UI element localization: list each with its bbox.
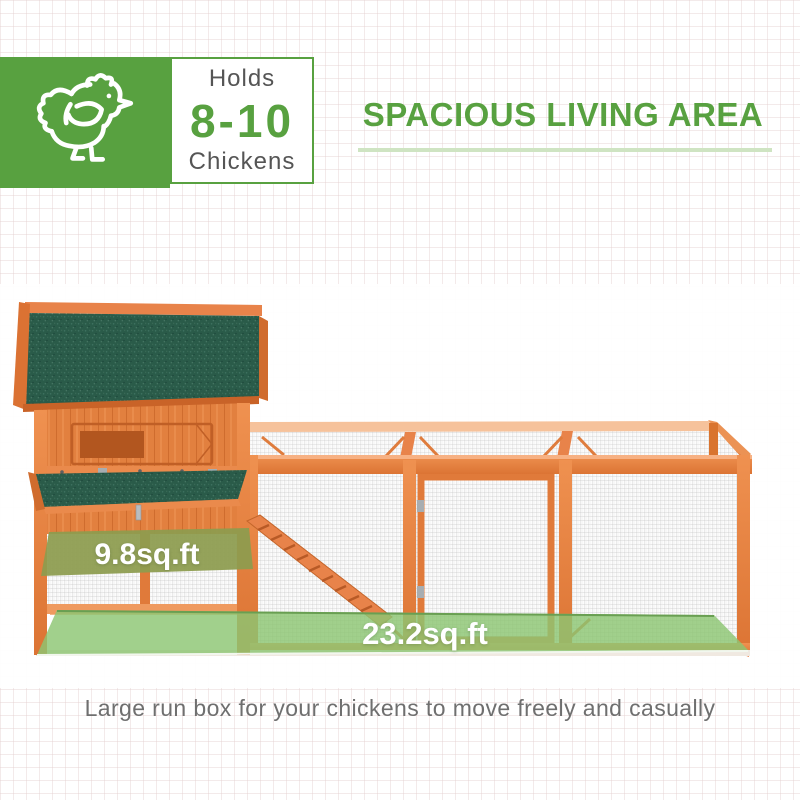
chicken-legs xyxy=(73,146,103,158)
product-infographic: 9.8sq.ft 23.2sq.ft Holds 8-10 Chickens S… xyxy=(0,0,800,800)
capacity-icon-box xyxy=(0,57,170,188)
house-area-label: 9.8sq.ft xyxy=(77,538,217,572)
screw xyxy=(60,470,64,474)
holds-label: Holds xyxy=(209,65,275,93)
house-left-wall xyxy=(34,410,47,655)
roof-panel xyxy=(23,313,259,406)
chicken-icon xyxy=(25,71,145,175)
chicken-head xyxy=(104,83,131,127)
chicken-back xyxy=(71,84,90,93)
run-area-label: 23.2sq.ft xyxy=(340,616,510,652)
caption-text: Large run box for your chickens to move … xyxy=(0,695,800,722)
chickens-label: Chickens xyxy=(189,148,296,176)
run-front-right-post xyxy=(737,455,750,655)
lid-prop-hinge xyxy=(136,505,141,520)
heading-underline xyxy=(358,148,772,152)
house-window-opening xyxy=(80,431,144,458)
chicken-eye xyxy=(107,93,112,98)
capacity-stat-box: Holds 8-10 Chickens xyxy=(170,57,314,184)
roof-right-fascia xyxy=(259,316,268,401)
beam-highlight xyxy=(245,455,752,459)
door-hinge xyxy=(417,500,424,512)
chicken-belly xyxy=(52,126,104,147)
capacity-range: 8-10 xyxy=(190,98,294,144)
door-hinge xyxy=(417,586,424,598)
page-title: SPACIOUS LIVING AREA xyxy=(350,96,776,134)
chicken-wing xyxy=(68,103,101,124)
